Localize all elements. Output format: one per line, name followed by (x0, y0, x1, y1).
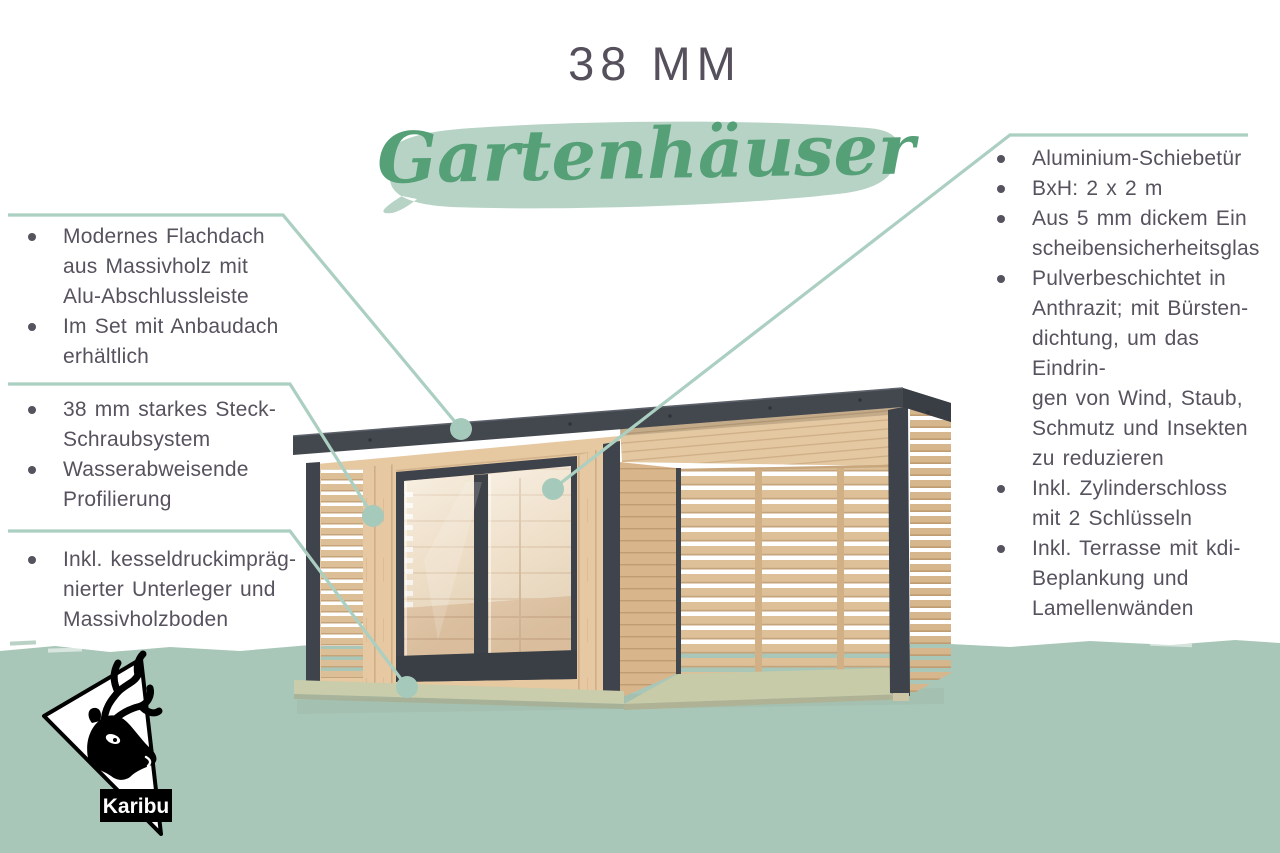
feature-item: Inkl. Terrasse mit kdi- Beplankung und L… (997, 534, 1280, 624)
feature-list: Inkl. kesseldruckimpräg- nierter Unterle… (28, 545, 296, 635)
feature-item: Inkl. Zylinderschloss mit 2 Schlüsseln (997, 474, 1280, 534)
bullet-icon (997, 155, 1005, 163)
callout-dot-wall (362, 505, 384, 527)
feature-item: Im Set mit Anbaudach erhältlich (28, 312, 278, 372)
bullet-icon (997, 215, 1005, 223)
feature-list: Modernes Flachdach aus Massivholz mit Al… (28, 222, 278, 372)
corner-post-mid (603, 441, 620, 700)
feature-text: Pulverbeschichtet in Anthrazit; mit Bürs… (1032, 264, 1280, 474)
feature-text: Aluminium-Schiebetür (1032, 144, 1241, 174)
bullet-icon (997, 485, 1005, 493)
callout-wall-features: 38 mm starkes Steck- Schraubsystem Wasse… (28, 395, 276, 515)
logo-brand-text: Karibu (103, 795, 170, 818)
corner-post-left (306, 462, 320, 694)
feature-item: Aus 5 mm dickem Ein scheibensicherheitsg… (997, 204, 1280, 264)
corner-post-right (888, 406, 910, 696)
bullet-icon (997, 185, 1005, 193)
callout-dot-door (542, 478, 564, 500)
feature-text: Wasserabweisende Profilierung (63, 455, 249, 515)
front-lamella-panel (321, 469, 363, 678)
callout-dot-floor (396, 676, 418, 698)
feature-item: Pulverbeschichtet in Anthrazit; mit Bürs… (997, 264, 1280, 474)
bullet-icon (28, 323, 36, 331)
feature-item: Inkl. kesseldruckimpräg- nierter Unterle… (28, 545, 296, 635)
feature-text: Inkl. Terrasse mit kdi- Beplankung und L… (1032, 534, 1241, 624)
feature-item: 38 mm starkes Steck- Schraubsystem (28, 395, 276, 455)
feature-text: Aus 5 mm dickem Ein scheibensicherheitsg… (1032, 204, 1260, 264)
feature-item: Modernes Flachdach aus Massivholz mit Al… (28, 222, 278, 312)
callout-dot-roof (450, 418, 472, 440)
feature-text: Inkl. Zylinderschloss mit 2 Schlüsseln (1032, 474, 1227, 534)
callout-door-features: Aluminium-Schiebetür BxH: 2 x 2 m Aus 5 … (997, 144, 1280, 624)
bullet-icon (28, 233, 36, 241)
feature-list: 38 mm starkes Steck- Schraubsystem Wasse… (28, 395, 276, 515)
feature-text: BxH: 2 x 2 m (1032, 174, 1163, 204)
feature-text: Inkl. kesseldruckimpräg- nierter Unterle… (63, 545, 296, 635)
feature-list: Aluminium-Schiebetür BxH: 2 x 2 m Aus 5 … (997, 144, 1280, 624)
callout-floor-features: Inkl. kesseldruckimpräg- nierter Unterle… (28, 545, 296, 635)
bullet-icon (997, 545, 1005, 553)
feature-text: Modernes Flachdach aus Massivholz mit Al… (63, 222, 265, 312)
callout-roof-features: Modernes Flachdach aus Massivholz mit Al… (28, 222, 278, 372)
bullet-icon (28, 466, 36, 474)
feature-text: 38 mm starkes Steck- Schraubsystem (63, 395, 276, 455)
cabin-side-wall (620, 462, 676, 698)
bullet-icon (28, 406, 36, 414)
front-plank-strip (363, 464, 396, 691)
bullet-icon (28, 556, 36, 564)
infographic-canvas: Karibu 38 MM Gartenhäuser Modernes Flach… (0, 0, 1280, 853)
terrace-lamella-side-wall (910, 406, 951, 695)
bullet-icon (997, 275, 1005, 283)
terrace-lamella-back-wall (681, 466, 890, 676)
feature-item: Aluminium-Schiebetür (997, 144, 1280, 174)
feature-item: Wasserabweisende Profilierung (28, 455, 276, 515)
feature-text: Im Set mit Anbaudach erhältlich (63, 312, 278, 372)
page-title: 38 MM (0, 36, 1280, 91)
feature-item: BxH: 2 x 2 m (997, 174, 1280, 204)
